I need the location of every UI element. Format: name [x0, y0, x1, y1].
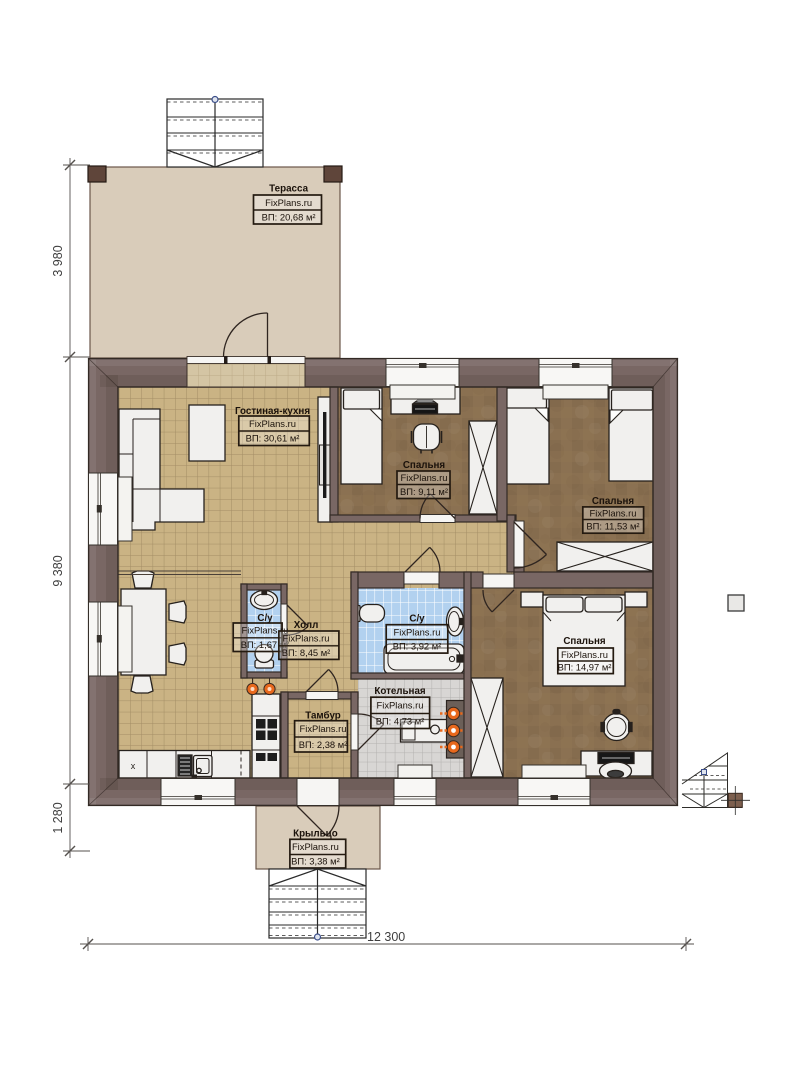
- svg-text:FixPlans.ru: FixPlans.ru: [401, 472, 448, 483]
- svg-text:FixPlans.ru: FixPlans.ru: [265, 197, 312, 208]
- svg-text:ВП: 8,45 м²: ВП: 8,45 м²: [282, 647, 331, 658]
- svg-text:ВП: 11,53 м²: ВП: 11,53 м²: [586, 521, 639, 532]
- svg-text:Котельная: Котельная: [374, 686, 426, 697]
- svg-text:FixPlans.ru: FixPlans.ru: [394, 626, 441, 637]
- svg-text:Терасса: Терасса: [269, 184, 308, 195]
- svg-text:Спальня: Спальня: [563, 636, 606, 647]
- svg-text:ВП: 9,11 м²: ВП: 9,11 м²: [400, 486, 448, 497]
- svg-text:Крыльцо: Крыльцо: [293, 829, 338, 840]
- svg-text:ВП: 3,38 м²: ВП: 3,38 м²: [291, 856, 340, 867]
- svg-text:12 300: 12 300: [367, 930, 405, 944]
- svg-text:FixPlans.ru: FixPlans.ru: [292, 841, 339, 852]
- svg-text:ВП: 14,97 м²: ВП: 14,97 м²: [558, 662, 612, 673]
- svg-text:FixPlans.ru: FixPlans.ru: [283, 633, 330, 644]
- svg-text:FixPlans.ru: FixPlans.ru: [300, 723, 347, 734]
- svg-text:FixPlans.ru: FixPlans.ru: [249, 418, 296, 429]
- svg-text:ВП: 30,61 м²: ВП: 30,61 м²: [246, 433, 300, 444]
- svg-text:ВП: 4,73 м²: ВП: 4,73 м²: [376, 715, 425, 726]
- svg-text:Спальня: Спальня: [403, 460, 446, 471]
- svg-text:9 380: 9 380: [51, 555, 65, 586]
- svg-text:x: x: [131, 761, 136, 771]
- svg-text:FixPlans.ru: FixPlans.ru: [377, 700, 424, 711]
- svg-text:FixPlans.ru: FixPlans.ru: [561, 649, 608, 660]
- svg-text:ВП: 20,68 м²: ВП: 20,68 м²: [262, 211, 316, 222]
- svg-text:Холл: Холл: [294, 620, 319, 631]
- svg-text:FixPlans.ru: FixPlans.ru: [590, 508, 637, 519]
- svg-text:3 980: 3 980: [51, 245, 65, 276]
- svg-text:ВП: 3,92 м²: ВП: 3,92 м²: [393, 641, 442, 652]
- svg-text:С/у: С/у: [409, 614, 425, 625]
- svg-text:Спальня: Спальня: [592, 496, 635, 507]
- svg-text:ВП: 2,38 м²: ВП: 2,38 м²: [299, 739, 348, 750]
- svg-text:1 280: 1 280: [51, 802, 65, 833]
